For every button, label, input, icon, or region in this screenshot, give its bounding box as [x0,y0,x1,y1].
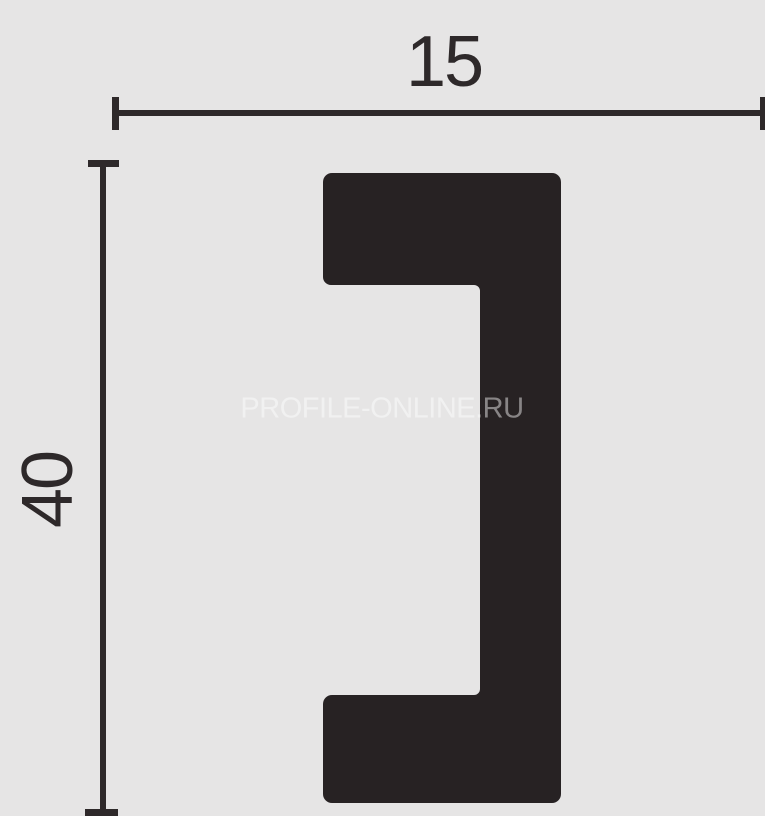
watermark: PROFILE-ONLINE.RU [240,393,523,426]
profile-diagram: 15 40 PROFILE-ONLINE.RU [0,0,765,816]
